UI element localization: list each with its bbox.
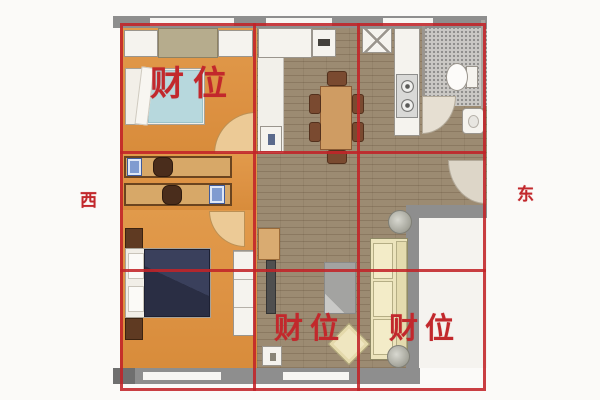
wealth-label-balcony: 财位 bbox=[389, 314, 461, 343]
wealth-grid-vline-1 bbox=[253, 23, 256, 391]
wealth-label-living: 财位 bbox=[274, 314, 346, 343]
floorplan-image: 财位 财位 财位 西 东 bbox=[0, 0, 600, 400]
wealth-grid-vline-2 bbox=[357, 23, 360, 391]
wealth-grid-hline-2 bbox=[120, 269, 486, 272]
direction-label-west: 西 bbox=[80, 193, 97, 210]
wealth-grid-hline-1 bbox=[120, 151, 486, 154]
direction-label-east: 东 bbox=[517, 187, 534, 204]
wealth-label-bedroom: 财位 bbox=[150, 67, 236, 101]
